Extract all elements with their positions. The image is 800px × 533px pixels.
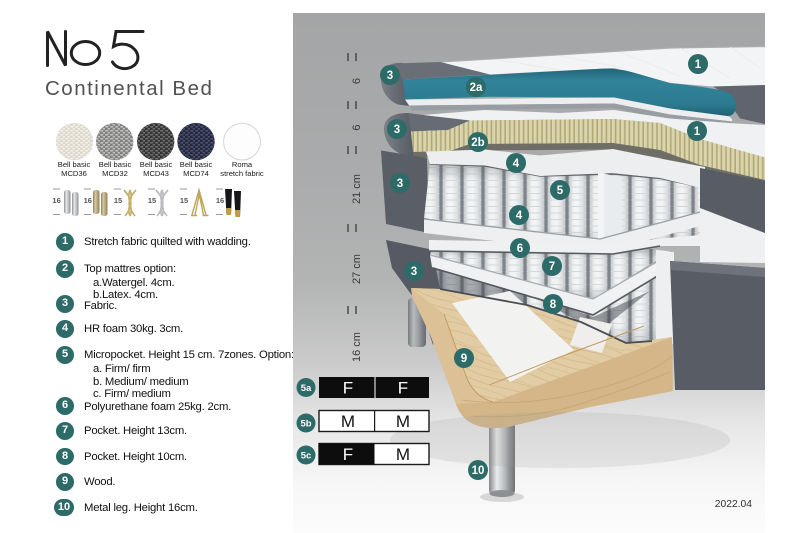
svg-text:2022.04: 2022.04	[715, 499, 752, 510]
svg-text:5c: 5c	[301, 451, 312, 462]
svg-text:6: 6	[351, 124, 363, 130]
svg-text:5a: 5a	[301, 383, 312, 394]
svg-text:3: 3	[411, 266, 417, 278]
svg-text:4: 4	[513, 158, 520, 170]
svg-text:F: F	[343, 445, 353, 464]
svg-text:M: M	[396, 412, 410, 431]
svg-text:3: 3	[387, 70, 393, 82]
svg-text:16 cm: 16 cm	[351, 332, 363, 362]
svg-text:4: 4	[516, 210, 523, 222]
svg-text:2b: 2b	[471, 137, 484, 149]
svg-text:27 cm: 27 cm	[351, 254, 363, 284]
svg-text:M: M	[341, 412, 355, 431]
svg-text:3: 3	[397, 178, 403, 190]
svg-text:1: 1	[695, 59, 702, 71]
svg-text:7: 7	[549, 261, 555, 273]
svg-text:21 cm: 21 cm	[351, 174, 363, 204]
svg-text:6: 6	[517, 243, 523, 255]
svg-text:5: 5	[557, 185, 564, 197]
svg-text:M: M	[396, 445, 410, 464]
svg-text:F: F	[398, 379, 408, 398]
svg-text:1: 1	[694, 126, 701, 138]
svg-text:F: F	[343, 379, 353, 398]
svg-text:3: 3	[394, 124, 400, 136]
svg-text:9: 9	[461, 353, 467, 365]
svg-text:2a: 2a	[470, 82, 483, 94]
svg-text:10: 10	[472, 465, 485, 477]
svg-text:5b: 5b	[300, 419, 311, 430]
svg-text:8: 8	[550, 299, 557, 311]
svg-text:6: 6	[351, 78, 363, 84]
